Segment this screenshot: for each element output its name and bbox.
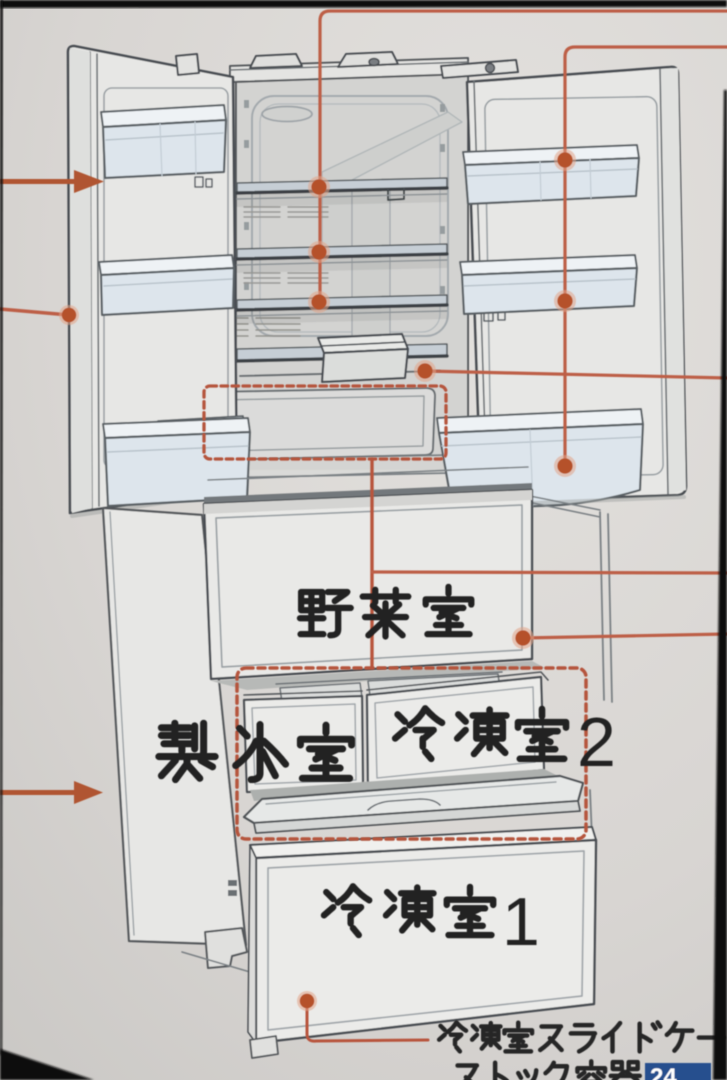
svg-text:2: 2 <box>577 703 616 781</box>
svg-text:1: 1 <box>502 884 540 960</box>
svg-text:24: 24 <box>650 1064 677 1080</box>
